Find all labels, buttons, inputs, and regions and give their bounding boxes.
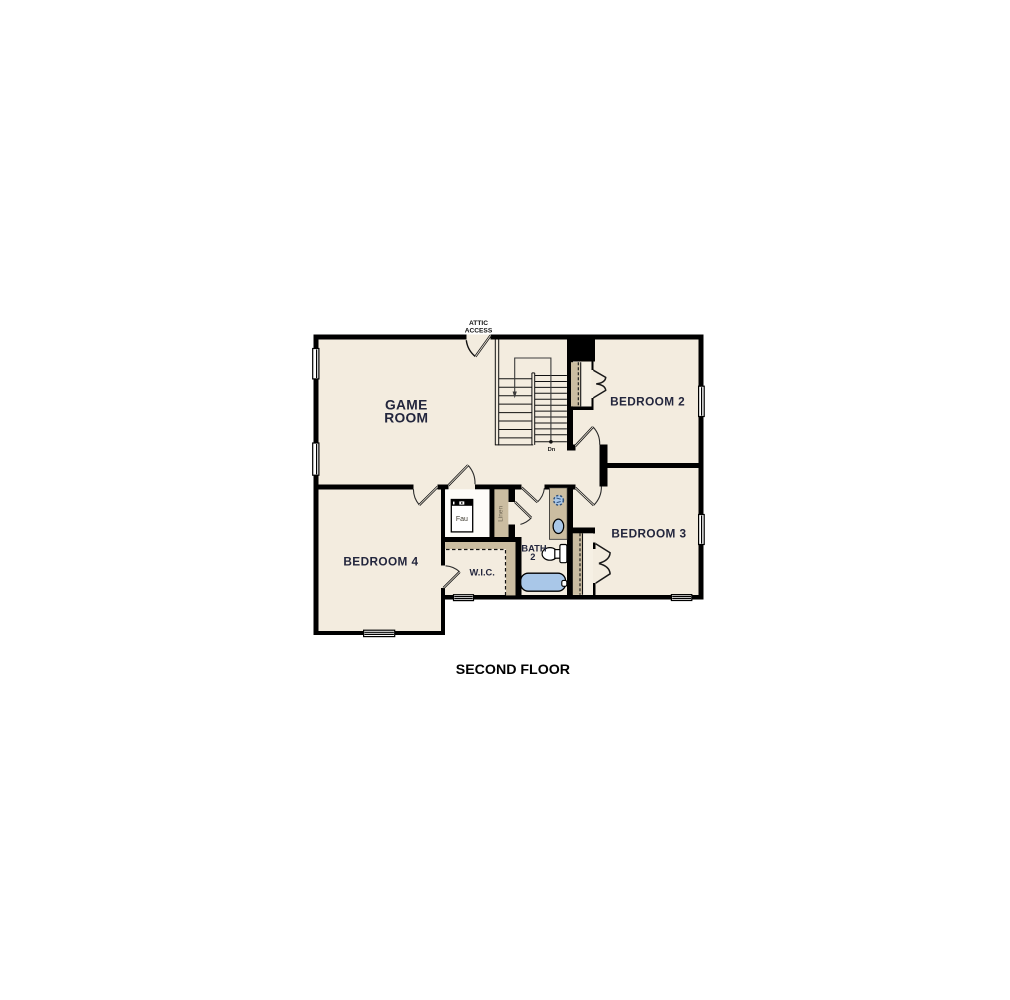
svg-text:Linen: Linen [497, 505, 504, 521]
svg-text:ACCESS: ACCESS [465, 327, 493, 334]
svg-text:ROOM: ROOM [384, 410, 428, 425]
svg-text:Fau: Fau [456, 516, 468, 523]
svg-text:BEDROOM 4: BEDROOM 4 [343, 555, 418, 569]
svg-text:BEDROOM 2: BEDROOM 2 [610, 395, 685, 409]
svg-text:SECOND FLOOR: SECOND FLOOR [456, 662, 570, 678]
svg-text:ATTIC: ATTIC [469, 320, 488, 327]
svg-text:2: 2 [530, 552, 535, 562]
svg-text:BEDROOM 3: BEDROOM 3 [611, 526, 686, 540]
svg-text:W.I.C.: W.I.C. [470, 568, 495, 578]
svg-text:Dn: Dn [548, 447, 556, 453]
